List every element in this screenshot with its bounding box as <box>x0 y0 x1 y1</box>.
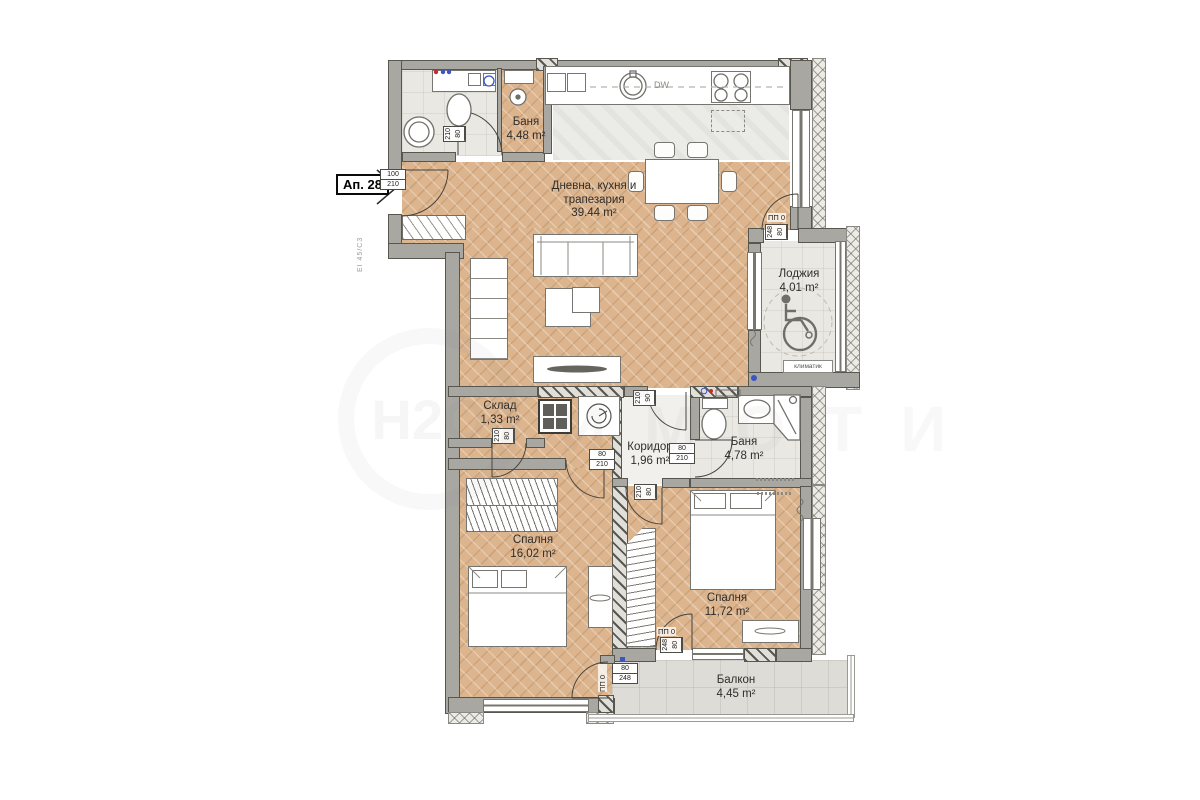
room-name: Дневна, кухня и трапезария <box>528 180 660 207</box>
room-area: 4,78 m² <box>706 450 782 464</box>
fire-door-label: ПП 0 <box>598 664 607 692</box>
fire-rating-label: EI 45/C3 <box>357 220 364 272</box>
wall <box>388 60 402 176</box>
wall <box>445 252 460 714</box>
room-label-balcony: Балкон 4,45 m² <box>694 674 778 701</box>
loggia-inner-window <box>747 252 762 330</box>
stove <box>711 71 751 103</box>
dining-chair <box>654 142 675 158</box>
console-table <box>588 566 613 628</box>
corridor-floor <box>622 395 690 484</box>
room-area: 11,72 m² <box>686 606 768 620</box>
room-label-bedroom1: Спалня 16,02 m² <box>492 534 574 561</box>
room-name: Балкон <box>694 674 778 688</box>
pillow <box>472 570 498 588</box>
wall-hatched <box>598 695 614 713</box>
wall <box>612 648 656 662</box>
small-annotation <box>756 478 794 481</box>
door-height: 210 <box>381 180 405 189</box>
washing-machine <box>483 73 496 86</box>
fire-door-label: ПП 0 <box>767 213 786 222</box>
room-area: 4,01 m² <box>762 282 836 296</box>
room-name: Баня <box>494 116 558 130</box>
wall <box>776 648 812 662</box>
balcony-railing <box>588 714 854 722</box>
fire-door-label: ПП 0 <box>657 627 676 636</box>
sofa <box>533 234 638 277</box>
wall <box>502 152 545 162</box>
room-label-bathroom2: Баня 4,78 m² <box>706 436 782 463</box>
tv-cabinet <box>533 356 621 383</box>
bookshelf <box>470 258 508 360</box>
loggia-window <box>835 241 846 372</box>
wall <box>402 152 456 162</box>
dishwasher-label: DW <box>654 80 669 90</box>
dresser <box>742 620 799 643</box>
room-name: Лоджия <box>762 268 836 282</box>
floor-plan: Баня 4,48 m² Дневна, кухня и трапезария … <box>0 0 1200 800</box>
wall <box>448 386 538 397</box>
room-area: 4,45 m² <box>694 688 778 702</box>
dining-chair <box>687 142 708 158</box>
entry-door-dimensions: 100 210 <box>380 169 406 190</box>
wall <box>748 228 764 243</box>
pillow <box>694 493 726 509</box>
room-area: 16,02 m² <box>492 548 574 562</box>
wall-insulation <box>812 58 826 230</box>
door-dimensions: 80248 <box>612 663 638 684</box>
kitchen-cabinet <box>567 73 586 92</box>
small-annotation <box>757 492 793 495</box>
extractor-hood-outline <box>711 110 745 132</box>
door-dimensions: 24880 <box>765 224 788 240</box>
bedroom2-balcony-window <box>692 648 744 660</box>
wall <box>748 330 761 374</box>
ventilation-shaft <box>578 396 620 436</box>
room-name: Спалня <box>686 592 768 606</box>
wall-insulation <box>448 712 484 724</box>
ventilation-shaft <box>538 399 572 434</box>
room-label-bathroom1: Баня 4,48 m² <box>494 116 558 143</box>
toilet-tank <box>702 398 728 409</box>
loggia-floor <box>760 241 838 374</box>
room-label-living: Дневна, кухня и трапезария 39.44 m² <box>528 180 660 221</box>
wall <box>448 458 566 470</box>
shower-shelf <box>504 70 534 84</box>
pillow <box>501 570 527 588</box>
door-dimensions: 21090 <box>633 390 656 406</box>
balcony-railing <box>847 655 855 718</box>
pillow <box>730 493 762 509</box>
room-label-loggia: Лоджия 4,01 m² <box>762 268 836 295</box>
wall <box>448 438 492 448</box>
wall <box>526 438 545 448</box>
bathroom-vanity <box>738 395 778 424</box>
room-name: Спалня <box>492 534 574 548</box>
wall-insulation <box>812 386 826 485</box>
bedroom1-window <box>483 699 589 712</box>
door-dimensions: 21080 <box>634 484 657 500</box>
room-name: Баня <box>706 436 782 450</box>
room-label-bedroom2: Спалня 11,72 m² <box>686 592 768 619</box>
wall-hatched <box>744 648 776 662</box>
kitchen-cabinet <box>547 73 566 92</box>
wall <box>690 397 700 440</box>
room-name: Склад <box>462 400 538 414</box>
wall <box>790 60 812 110</box>
wardrobe <box>466 478 558 532</box>
room-area: 1,33 m² <box>462 414 538 428</box>
bedroom2-window <box>803 518 821 590</box>
door-dimensions: 80210 <box>669 443 695 464</box>
room-label-storage: Склад 1,33 m² <box>462 400 538 427</box>
wall <box>790 206 812 230</box>
wardrobe <box>626 528 656 647</box>
kitchen-window <box>792 110 810 208</box>
wall-hatched <box>612 486 628 658</box>
coffee-table <box>572 287 600 313</box>
door-dimensions: 21080 <box>492 428 515 444</box>
wall-insulation <box>846 226 860 390</box>
door-dimensions: 80210 <box>589 449 615 470</box>
wall <box>800 397 812 485</box>
entry-closet <box>402 215 466 240</box>
room-area: 39.44 m² <box>528 207 660 221</box>
door-width: 100 <box>381 170 405 180</box>
washing-machine <box>468 73 481 86</box>
wall <box>662 478 690 488</box>
door-dimensions: 21080 <box>443 126 466 142</box>
air-conditioner-label: климатик <box>783 360 833 373</box>
dining-chair <box>721 171 737 192</box>
door-dimensions: 24880 <box>660 637 683 653</box>
room-area: 4,48 m² <box>494 130 558 144</box>
dining-chair <box>687 205 708 221</box>
